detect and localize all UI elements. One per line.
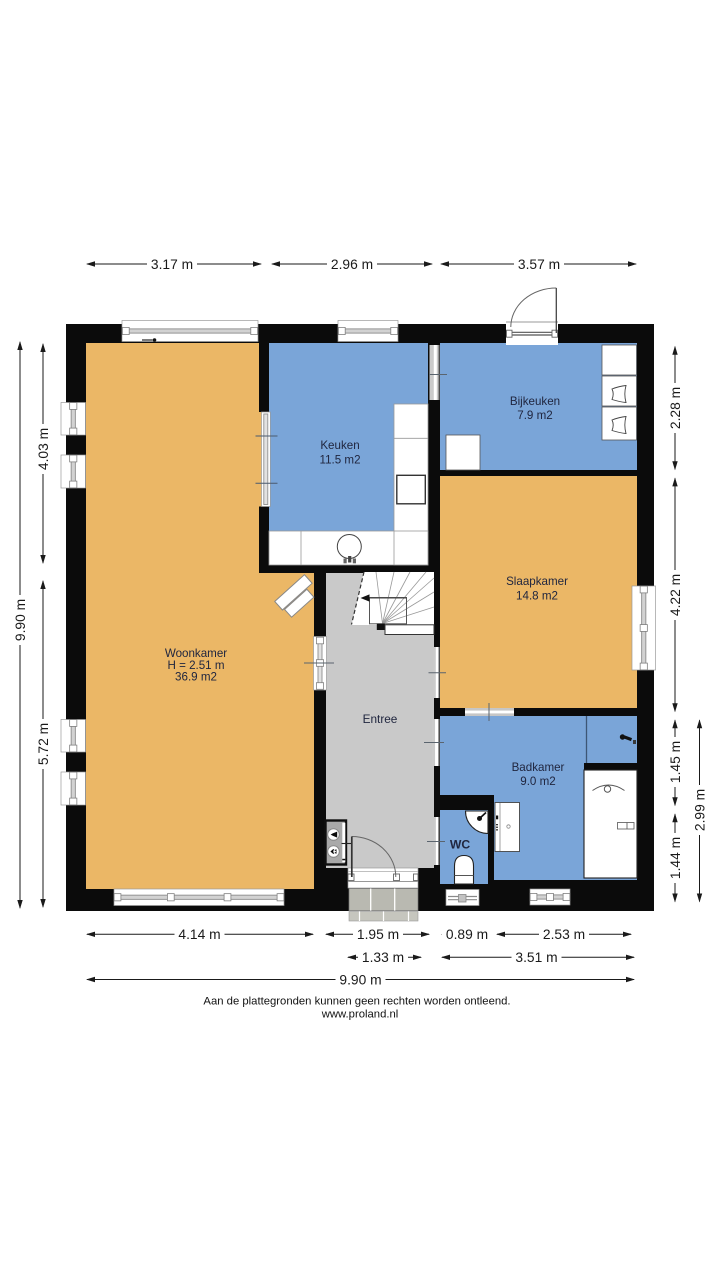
svg-text:3.51 m: 3.51 m bbox=[515, 950, 557, 965]
svg-text:4.03 m: 4.03 m bbox=[36, 428, 51, 470]
svg-text:Badkamer: Badkamer bbox=[512, 761, 565, 774]
svg-text:4.14 m: 4.14 m bbox=[178, 927, 220, 942]
svg-text:Entree: Entree bbox=[363, 712, 398, 726]
svg-text:www.proland.nl: www.proland.nl bbox=[321, 1009, 399, 1021]
svg-text:9.90 m: 9.90 m bbox=[339, 972, 381, 987]
svg-text:1.44 m: 1.44 m bbox=[668, 837, 683, 879]
svg-text:11.5 m2: 11.5 m2 bbox=[319, 454, 360, 467]
svg-text:9.0 m2: 9.0 m2 bbox=[520, 775, 555, 788]
svg-text:Bijkeuken: Bijkeuken bbox=[510, 395, 560, 408]
svg-text:1.95 m: 1.95 m bbox=[357, 927, 399, 942]
svg-text:7.9 m2: 7.9 m2 bbox=[517, 409, 552, 422]
svg-text:2.99 m: 2.99 m bbox=[692, 789, 707, 831]
svg-text:36.9 m2: 36.9 m2 bbox=[175, 671, 217, 684]
svg-text:0.89 m: 0.89 m bbox=[446, 927, 488, 942]
svg-text:9.90 m: 9.90 m bbox=[13, 599, 28, 641]
svg-text:3.17 m: 3.17 m bbox=[151, 257, 193, 272]
svg-text:Slaapkamer: Slaapkamer bbox=[506, 575, 568, 588]
svg-text:1.45 m: 1.45 m bbox=[668, 741, 683, 783]
svg-text:Aan de plattegronden kunnen ge: Aan de plattegronden kunnen geen rechten… bbox=[203, 996, 510, 1008]
svg-text:1.33 m: 1.33 m bbox=[362, 950, 404, 965]
svg-text:2.96 m: 2.96 m bbox=[331, 257, 373, 272]
svg-text:3.57 m: 3.57 m bbox=[518, 257, 560, 272]
svg-text:2.53 m: 2.53 m bbox=[543, 927, 585, 942]
svg-text:2.28 m: 2.28 m bbox=[668, 387, 683, 429]
svg-text:Keuken: Keuken bbox=[320, 439, 359, 452]
svg-text:4.22 m: 4.22 m bbox=[668, 574, 683, 616]
svg-text:5.72 m: 5.72 m bbox=[36, 723, 51, 765]
svg-text:WC: WC bbox=[450, 837, 471, 851]
svg-text:14.8 m2: 14.8 m2 bbox=[516, 590, 558, 603]
